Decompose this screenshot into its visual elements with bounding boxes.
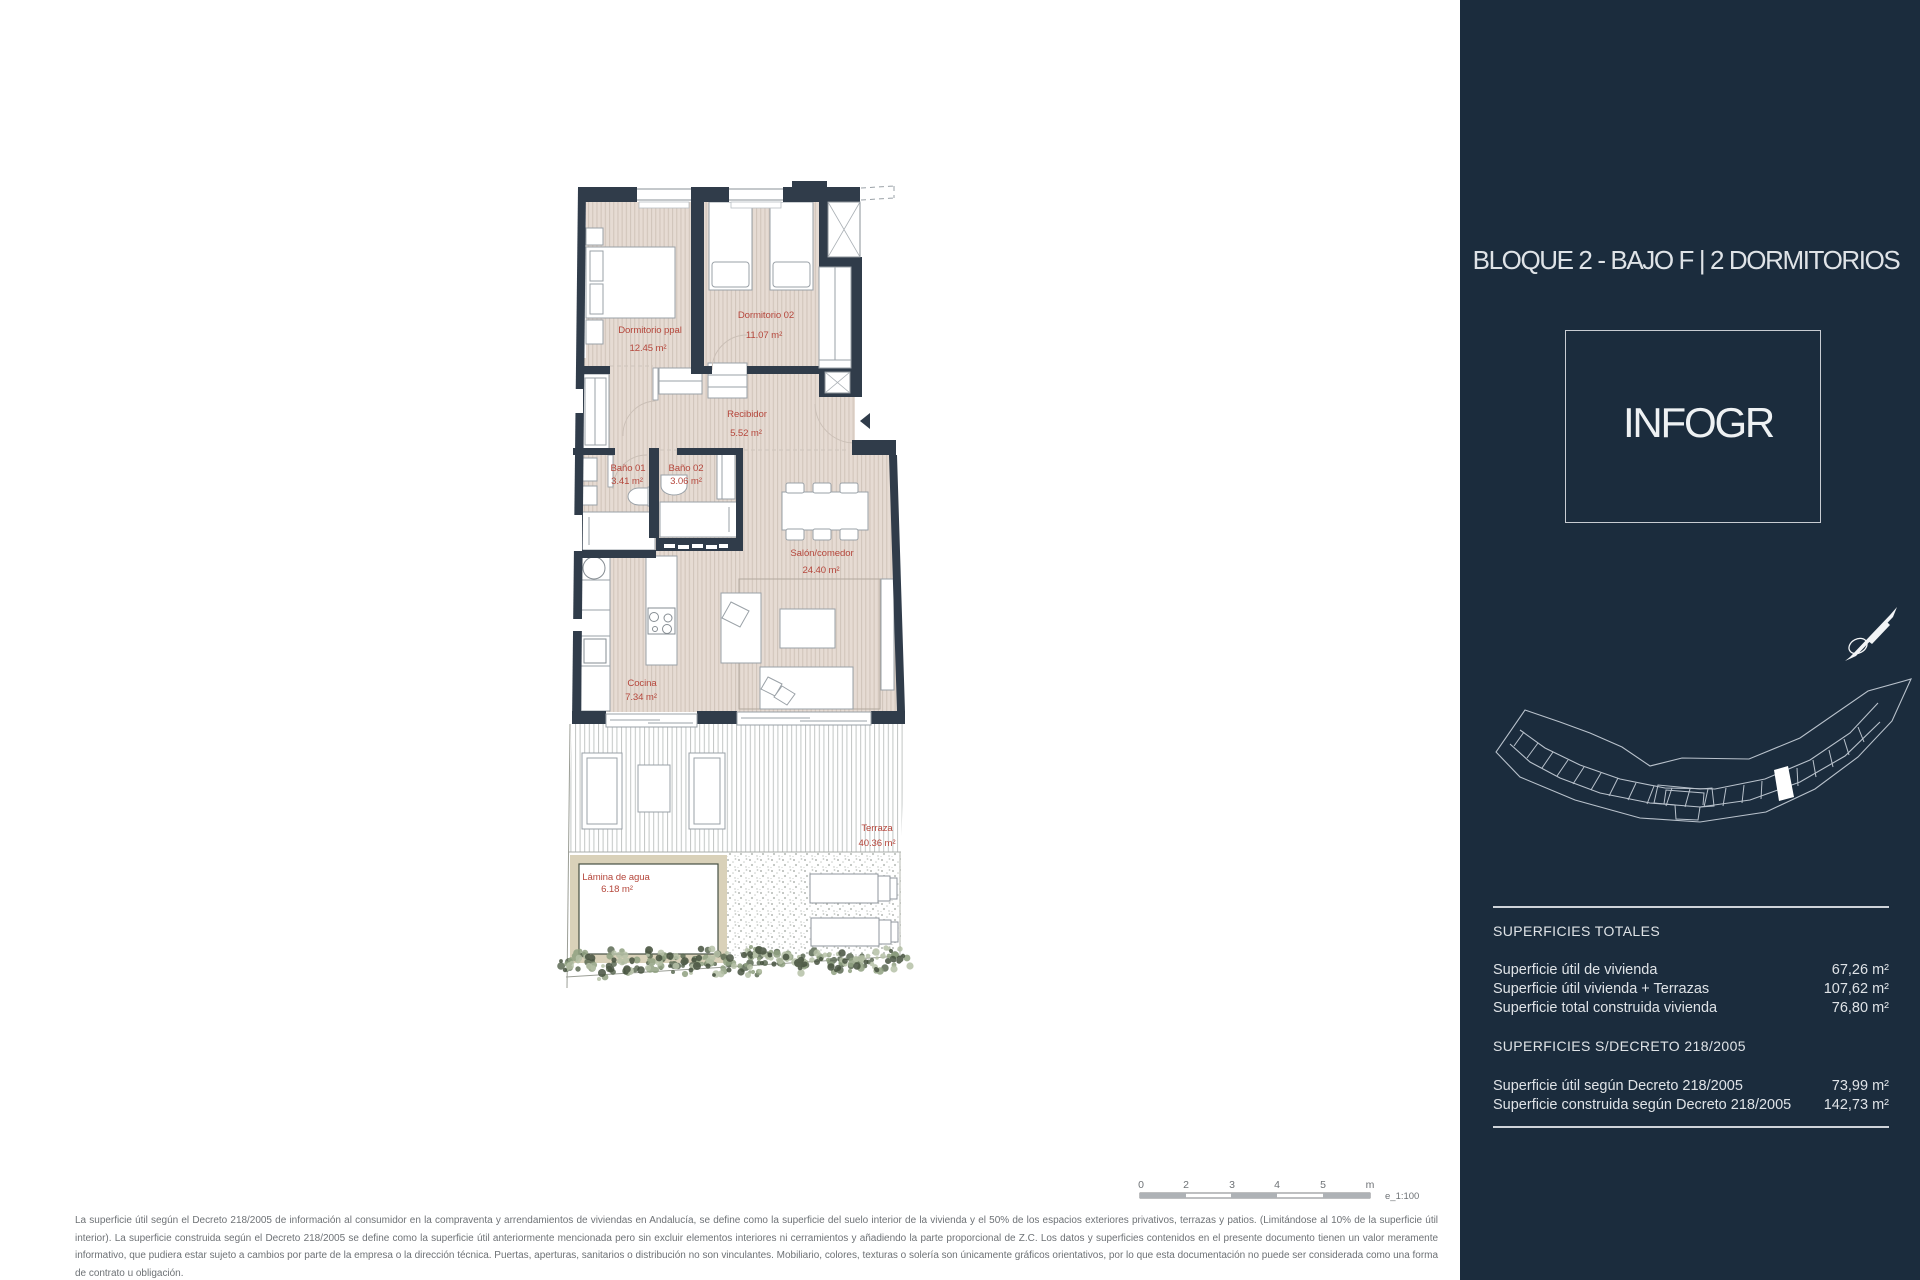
svg-text:0: 0 [1138, 1179, 1144, 1191]
svg-text:6.18 m²: 6.18 m² [601, 884, 634, 895]
svg-text:11.07 m²: 11.07 m² [746, 330, 783, 341]
svg-text:142,73 m²: 142,73 m² [1824, 1097, 1889, 1113]
svg-text:Superficie construida según De: Superficie construida según Decreto 218/… [1493, 1097, 1791, 1113]
svg-text:Lámina de agua: Lámina de agua [582, 872, 650, 883]
svg-text:Superficie útil según Decreto: Superficie útil según Decreto 218/2005 [1493, 1078, 1743, 1094]
svg-text:Dormitorio ppal: Dormitorio ppal [618, 325, 682, 336]
svg-text:Superficie útil vivienda + Ter: Superficie útil vivienda + Terrazas [1493, 981, 1709, 997]
svg-text:40.36 m²: 40.36 m² [858, 838, 896, 849]
svg-text:Baño 02: Baño 02 [668, 463, 703, 474]
svg-text:4: 4 [1274, 1179, 1280, 1191]
svg-text:INFOGR: INFOGR [1623, 399, 1774, 446]
svg-text:5.52 m²: 5.52 m² [730, 428, 763, 439]
svg-text:e_1:100: e_1:100 [1385, 1191, 1419, 1202]
svg-text:Salón/comedor: Salón/comedor [790, 548, 854, 559]
svg-text:Superficie útil de vivienda: Superficie útil de vivienda [1493, 962, 1658, 978]
svg-text:3.06 m²: 3.06 m² [670, 476, 703, 487]
svg-text:m: m [1366, 1179, 1375, 1191]
svg-text:73,99 m²: 73,99 m² [1832, 1078, 1889, 1094]
svg-text:SUPERFICIES TOTALES: SUPERFICIES TOTALES [1493, 923, 1660, 939]
svg-text:SUPERFICIES S/DECRETO 218/2005: SUPERFICIES S/DECRETO 218/2005 [1493, 1038, 1746, 1054]
svg-text:76,80 m²: 76,80 m² [1832, 1000, 1889, 1016]
svg-text:Recibidor: Recibidor [727, 409, 768, 420]
svg-text:Superficie total construida vi: Superficie total construida vivienda [1493, 1000, 1718, 1016]
svg-text:3: 3 [1229, 1179, 1235, 1191]
svg-text:107,62 m²: 107,62 m² [1824, 981, 1889, 997]
svg-text:24.40 m²: 24.40 m² [802, 565, 840, 576]
svg-text:5: 5 [1320, 1179, 1326, 1191]
svg-text:3.41 m²: 3.41 m² [611, 476, 644, 487]
svg-text:Cocina: Cocina [627, 678, 657, 689]
svg-text:7.34 m²: 7.34 m² [625, 692, 658, 703]
svg-text:67,26 m²: 67,26 m² [1832, 962, 1889, 978]
svg-text:Baño 01: Baño 01 [610, 463, 645, 474]
svg-text:12.45 m²: 12.45 m² [629, 343, 667, 354]
svg-text:2: 2 [1183, 1179, 1189, 1191]
svg-text:Dormitorio 02: Dormitorio 02 [738, 310, 794, 321]
svg-text:Terraza: Terraza [861, 823, 893, 834]
svg-text:BLOQUE 2 - BAJO F | 2 DORMITOR: BLOQUE 2 - BAJO F | 2 DORMITORIOS [1473, 245, 1901, 275]
